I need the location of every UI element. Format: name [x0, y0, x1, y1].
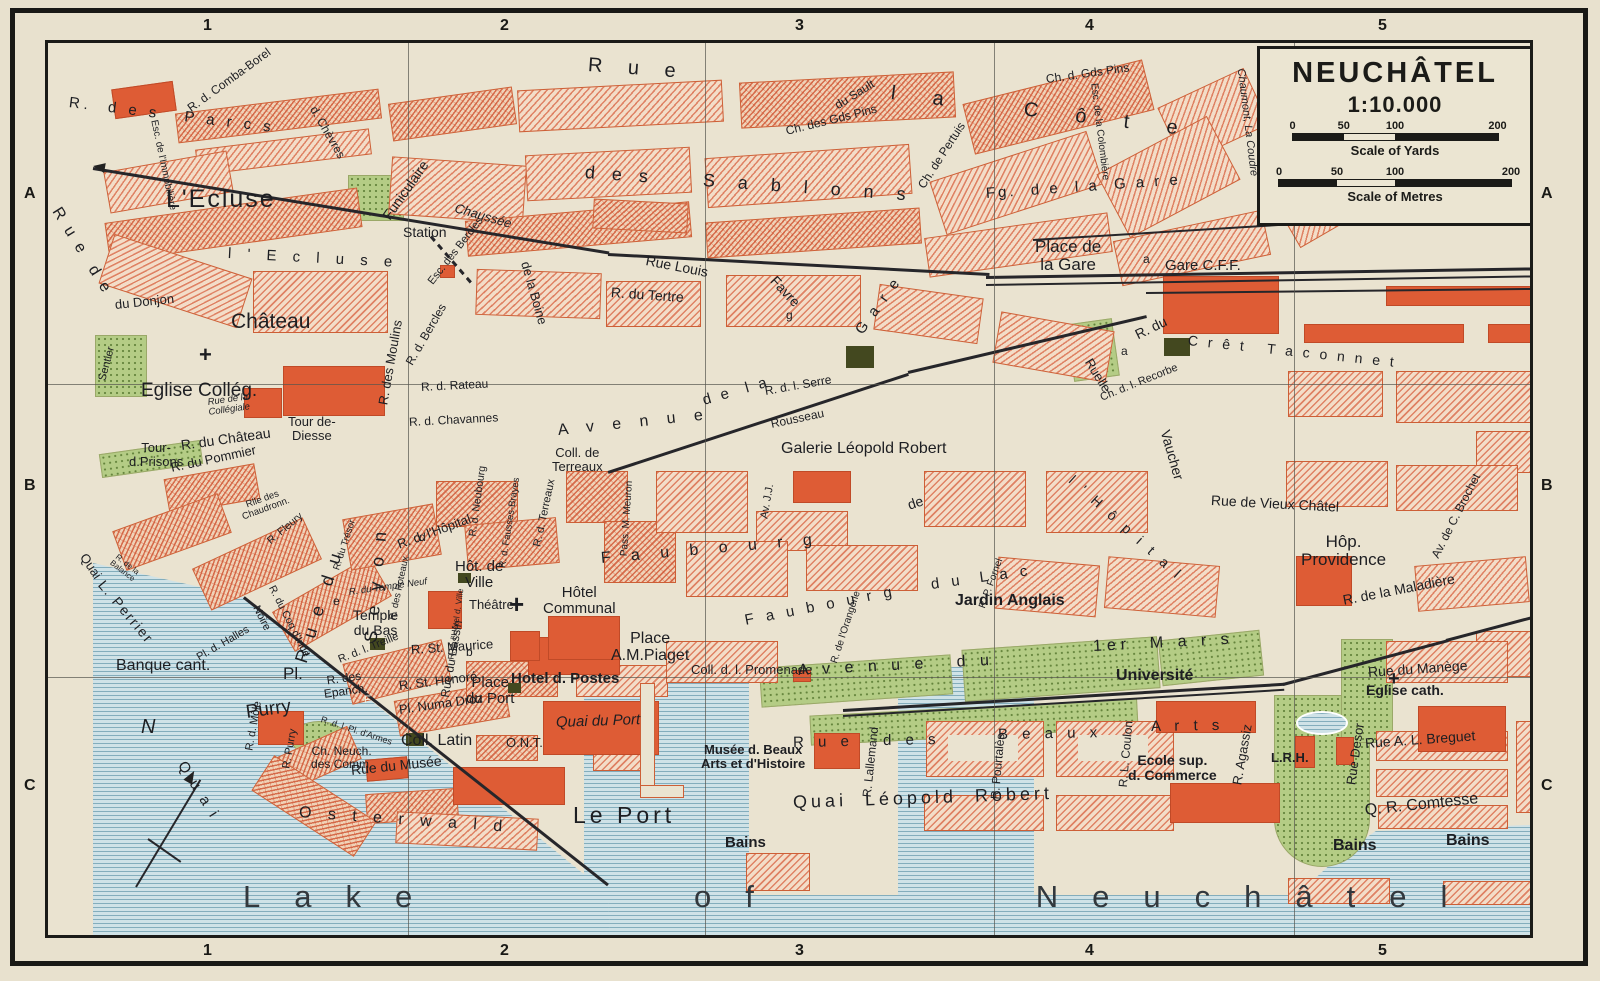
map-label: +	[1388, 669, 1400, 690]
map-label: R. d. Chavannes	[409, 411, 499, 428]
map-label: e	[333, 595, 340, 608]
map-label: Hotel d. Postes	[511, 671, 619, 687]
pier	[640, 785, 684, 798]
map-label: F	[364, 695, 371, 707]
map-label: R. St. Maurice	[411, 637, 494, 656]
map-label: +	[509, 591, 524, 618]
map-label: Eglise cath.	[1366, 683, 1444, 698]
galerie	[793, 471, 851, 503]
building-block	[566, 471, 628, 523]
map-label: Bains	[1446, 833, 1490, 850]
grid-col-label: 2	[500, 942, 509, 960]
building-block	[656, 471, 748, 533]
map-label: R u e	[587, 55, 686, 83]
map-label: Université	[1116, 668, 1193, 685]
map-label: a	[1121, 345, 1128, 358]
map-label: de	[906, 494, 925, 513]
map-label: R. d. Rateau	[421, 377, 489, 393]
map-label: b	[466, 646, 473, 659]
gare-cff	[1163, 276, 1279, 334]
map-label: d e s	[883, 732, 941, 749]
map-label: Place de la Gare	[1035, 238, 1101, 274]
map-label: Ecole sup. d. Commerce	[1128, 753, 1217, 782]
building-block	[592, 199, 688, 234]
rail-platform	[1304, 324, 1464, 343]
map-label: +	[199, 343, 212, 366]
map-label: Vaucher	[1158, 428, 1186, 481]
map-label: g	[786, 309, 793, 322]
map-label: A r t s	[1151, 718, 1225, 735]
map-label: Quai du Port	[556, 712, 641, 731]
map-label: Gare C.F.F.	[1165, 258, 1241, 274]
grid-col-label: 1	[203, 942, 212, 960]
pier	[640, 683, 655, 793]
title-box: NEUCHÂTEL 1:10.000 050100200Scale of Yar…	[1257, 46, 1533, 226]
grid-row-label: C	[24, 777, 36, 795]
coll-latin	[453, 767, 565, 805]
map-label: L'Ecluse	[166, 186, 276, 212]
map-label: d e l a	[701, 374, 772, 408]
building-block	[1396, 371, 1533, 423]
hotel-communal	[548, 616, 620, 660]
map-label: Tour de- Diesse	[288, 415, 336, 442]
map-label: Station	[403, 225, 447, 240]
grid-row-label: B	[1541, 477, 1553, 495]
map-label: Rousseau	[770, 407, 825, 431]
map-label: Place A.M.Piaget	[611, 631, 689, 665]
scale-bar: 050100200Scale of Metres	[1278, 166, 1512, 210]
map-label: Coll. d. l. Promenade	[691, 663, 812, 677]
map-label: L.R.H.	[1271, 751, 1309, 765]
building-block	[1288, 371, 1383, 417]
grid-col-label: 4	[1085, 942, 1094, 960]
grid-line-h	[48, 677, 1533, 678]
map-label: du Donjon	[114, 292, 174, 312]
map-label: a	[1143, 253, 1150, 266]
map-label: Hôt. de Ville	[455, 559, 503, 591]
building-block	[924, 471, 1026, 527]
map-label: A v e n u e	[557, 407, 711, 440]
map-label: Lake of Neuchâtel	[243, 881, 1481, 914]
building-block	[1516, 721, 1533, 813]
building-dark	[1164, 338, 1190, 356]
grid-col-label: 2	[500, 17, 509, 35]
map-sheet: 1122334455AABBCC Crêt du PlanCorcelles, …	[0, 0, 1600, 981]
map-label: R. d. l. Serre	[764, 373, 833, 397]
map-label: Coll. Latin	[401, 733, 472, 750]
scale-bar: 050100200Scale of Yards	[1278, 120, 1512, 164]
map-label: Le Port	[573, 803, 675, 827]
grid-row-label: A	[1541, 185, 1553, 203]
map-label: Jardin Anglais	[955, 593, 1065, 610]
ecole-commerce	[1170, 783, 1280, 823]
map-title: NEUCHÂTEL	[1260, 57, 1530, 90]
building-block	[517, 80, 724, 133]
map-label: Château	[231, 311, 310, 333]
map-label: R u e d e	[48, 205, 115, 298]
map-label: Bains	[1333, 838, 1377, 855]
theatre	[510, 631, 540, 661]
grid-row-label: C	[1541, 777, 1553, 795]
grid-col-label: 4	[1085, 17, 1094, 35]
road-arrowhead	[92, 161, 106, 173]
map-label: Pl.	[283, 665, 303, 683]
map-label: Galerie Léopold Robert	[781, 441, 946, 458]
map-label: N	[141, 717, 155, 738]
grid-row-label: A	[24, 185, 36, 203]
map-label: Théâtre	[469, 598, 514, 612]
map-label: Bains	[725, 835, 766, 851]
grid-col-label: 1	[203, 17, 212, 35]
map-label: Place du Port	[466, 675, 514, 707]
map-label: l ' E c l u s e	[228, 246, 399, 271]
map-label: Banque cant.	[116, 658, 210, 675]
grid-col-label: 3	[795, 17, 804, 35]
map-label: Hôp. Providence	[1301, 533, 1386, 569]
building-dark	[846, 346, 874, 368]
map-label: Hôtel Communal	[543, 585, 616, 617]
building-block	[705, 208, 922, 259]
rail-platform	[1488, 324, 1533, 343]
map-label: Coll. de Terreaux	[552, 446, 603, 473]
pond	[1296, 711, 1348, 735]
map-scale-ratio: 1:10.000	[1260, 92, 1530, 118]
grid-col-label: 5	[1378, 17, 1387, 35]
map-label: R. d. Bercles	[404, 302, 449, 368]
chateau	[283, 366, 385, 416]
grid-row-label: B	[24, 477, 36, 495]
map-label: d	[419, 531, 426, 544]
map-label: Musée d. Beaux Arts et d'Histoire	[701, 743, 805, 770]
grid-col-label: 3	[795, 942, 804, 960]
scale-bars: 050100200Scale of Yards050100200Scale of…	[1260, 120, 1530, 210]
map-label: R u e	[793, 734, 854, 751]
map-label: O.N.T.	[506, 736, 543, 750]
map-label: B e a u x	[998, 725, 1102, 743]
grid-col-label: 5	[1378, 942, 1387, 960]
building-block	[806, 545, 918, 591]
building-block	[1056, 795, 1174, 831]
